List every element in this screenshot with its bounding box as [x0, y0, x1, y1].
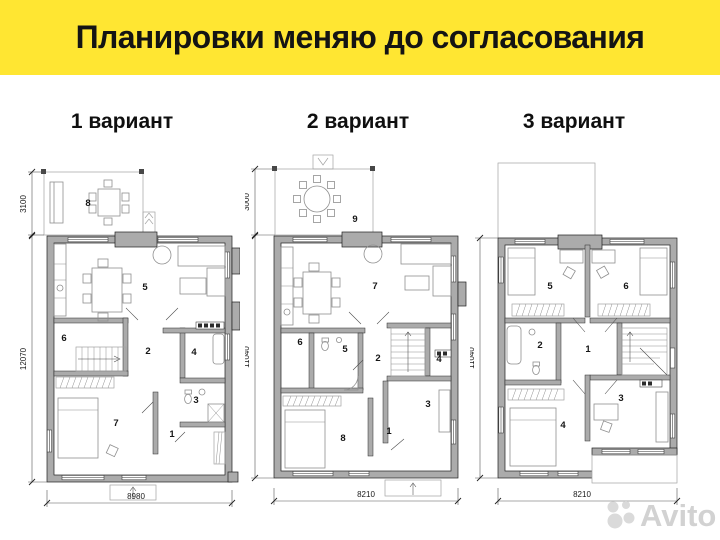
room-label: 5: [142, 282, 148, 293]
floor-plan-variant-2: 9 7 6 5 2 4 3 1 8 3000 11040 8210: [245, 152, 475, 530]
avito-watermark: Avito: [604, 499, 716, 531]
dimension-label: 3000: [245, 193, 251, 211]
plan1-terrace: [41, 169, 155, 235]
room-label: 7: [113, 418, 118, 429]
dimension-label: 12070: [19, 347, 28, 370]
room-label: 6: [297, 337, 302, 348]
room-label: 1: [169, 429, 175, 440]
avito-watermark-text: Avito: [640, 500, 716, 531]
room-label: 8: [340, 433, 345, 444]
dimension-label: 11040: [470, 347, 476, 369]
plan2-terrace: [272, 155, 375, 235]
room-label: 1: [386, 426, 392, 437]
room-label: 3: [193, 395, 198, 406]
room-label: 4: [560, 420, 566, 431]
room-label: 2: [537, 340, 542, 351]
room-label: 5: [342, 344, 348, 355]
room-label: 3: [425, 399, 430, 410]
room-label: 6: [623, 281, 628, 292]
room-label: 3: [618, 393, 623, 404]
variant-3-label: 3 вариант: [486, 110, 662, 134]
floor-plan-variant-1: 8 5 6 2 4 3 7 1 3100 12070 8980: [10, 152, 240, 530]
avito-logo-icon: [604, 499, 638, 531]
floor-plan-3-drawing: 5 6 2 1 3 4 11040 8210: [470, 152, 720, 530]
floor-plan-2-drawing: 9 7 6 5 2 4 3 1 8 3000 11040 8210: [245, 152, 475, 530]
room-label: 4: [436, 354, 442, 365]
room-label: 5: [547, 281, 553, 292]
dimension-label: 8210: [357, 490, 375, 499]
variant-2-label: 2 вариант: [270, 110, 446, 134]
room-label: 7: [372, 281, 377, 292]
room-label: 4: [191, 347, 197, 358]
room-label: 8: [85, 198, 90, 209]
dimension-label: 3100: [19, 195, 28, 213]
page-title: Планировки меняю до согласования: [76, 19, 645, 56]
dimension-label: 8980: [127, 492, 145, 501]
variant-1-label: 1 вариант: [34, 110, 210, 134]
floor-plan-variant-3: 5 6 2 1 3 4 11040 8210: [470, 152, 720, 530]
room-label: 2: [375, 353, 380, 364]
room-label: 2: [145, 346, 150, 357]
plan3-roof-outline: [498, 163, 595, 238]
room-label: 9: [352, 214, 357, 225]
floor-plan-1-drawing: 8 5 6 2 4 3 7 1 3100 12070 8980: [10, 152, 240, 530]
dimension-label: 8210: [573, 490, 591, 499]
room-label: 1: [585, 344, 591, 355]
room-label: 6: [61, 333, 66, 344]
dimension-label: 11040: [245, 346, 251, 368]
header-banner: Планировки меняю до согласования: [0, 0, 720, 75]
